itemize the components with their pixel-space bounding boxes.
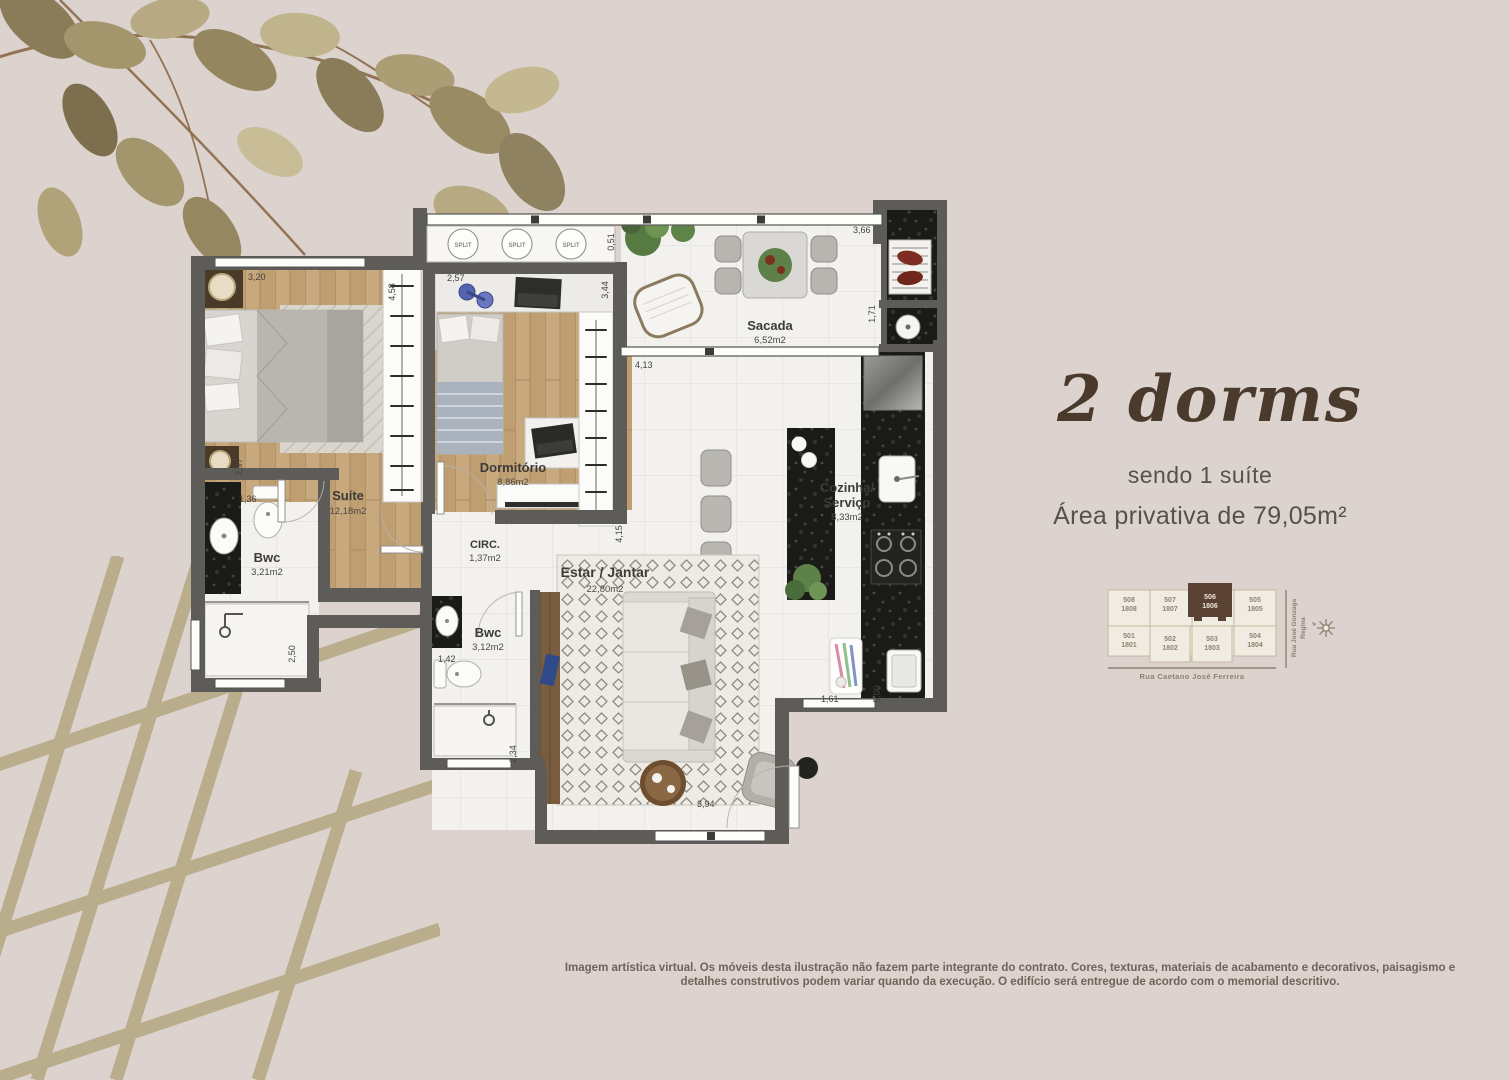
label-sacada: Sacada [747, 318, 793, 333]
dim-3-66: 3,66 [853, 225, 871, 235]
plan-headline: 2 dorms [1055, 362, 1365, 437]
street-right-label-1: Rua José Gonzaga [1291, 599, 1298, 658]
dim-3-94: 3,94 [697, 799, 715, 809]
shower [434, 706, 516, 756]
dim-3-20: 3,20 [248, 272, 266, 282]
entry-door-leaf [789, 766, 799, 828]
laptop [514, 277, 562, 309]
bwc2-window [447, 759, 511, 768]
kitchen-window [803, 699, 875, 708]
label-bwc-social: Bwc [475, 625, 502, 640]
dim-1-71: 1,71 [867, 305, 877, 323]
dim-1-61: 1,61 [821, 694, 839, 704]
table-plant [758, 248, 792, 282]
dim-2-34: 2,34 [508, 745, 518, 763]
dim-2-50: 2,50 [287, 645, 297, 663]
disclaimer-line-1: Imagem artística virtual. Os móveis dest… [520, 961, 1500, 975]
shower [205, 604, 309, 676]
label-cozinha-1: Cozinha/ [820, 480, 875, 495]
dim-5-00: 5,00 [872, 685, 882, 703]
dim-4-58: 4,58 [387, 283, 397, 301]
unit-505: 505 [1249, 597, 1261, 604]
area-bwc-suite: 3,21m2 [251, 567, 283, 578]
plan-private-area: Área privativa de 79,05m² [1050, 502, 1350, 531]
sofa [623, 592, 715, 762]
label-suite: Suíte [332, 488, 364, 503]
cleaning-items [830, 638, 862, 694]
unit-1807: 1807 [1162, 606, 1178, 613]
churrasqueira [881, 210, 937, 348]
dim-4-15: 4,15 [614, 525, 624, 543]
flyer-page: SPLIT SPLIT SPLIT Suíte 12,18m2 Dormitór… [0, 0, 1509, 1080]
unit-1801: 1801 [1121, 642, 1137, 649]
plan-subtitle: sendo 1 suíte [1080, 462, 1320, 489]
split-label: SPLIT [508, 243, 525, 249]
shower-window [215, 679, 285, 688]
unit-1802: 1802 [1162, 645, 1178, 652]
unit-1808: 1808 [1121, 606, 1137, 613]
dim-1-42: 1,42 [438, 654, 456, 664]
dim-2-97: 2,97 [234, 458, 244, 476]
unit-1803: 1803 [1204, 645, 1220, 652]
area-dormitorio: 8,86m2 [497, 477, 529, 488]
stove [871, 530, 921, 584]
area-cozinha: 8,33m2 [831, 512, 863, 523]
unit-501: 501 [1123, 633, 1135, 640]
area-estar: 22,80m2 [587, 584, 624, 595]
living-sacada-slider [621, 347, 879, 356]
split-label: SPLIT [454, 243, 471, 249]
dim-3-44: 3,44 [600, 281, 610, 299]
unit-503: 503 [1206, 636, 1218, 643]
laptop [531, 423, 577, 459]
unit-1804: 1804 [1247, 642, 1263, 649]
label-cozinha-2: Serviço [824, 495, 871, 510]
disclaimer-line-2: detalhes construtivos podem variar quand… [520, 975, 1500, 989]
dormitorio-closet [579, 312, 613, 526]
label-circ: CIRC. [470, 539, 500, 551]
split-shelf: SPLIT SPLIT SPLIT [427, 226, 615, 262]
street-right-label-2: Regina [1300, 617, 1307, 639]
dim-0-51: 0,51 [606, 233, 616, 251]
unit-506: 506 [1204, 594, 1216, 601]
suite-window [215, 258, 365, 267]
dim-1-36: 1,36 [239, 494, 257, 504]
area-bwc-social: 3,12m2 [472, 642, 504, 653]
unit-504: 504 [1249, 633, 1261, 640]
compass-icon [1312, 619, 1335, 637]
bwc1-window [191, 620, 200, 670]
unit-502: 502 [1164, 636, 1176, 643]
label-dormitorio: Dormitório [480, 460, 547, 475]
split-label: SPLIT [562, 243, 579, 249]
area-suite: 12,18m2 [330, 506, 367, 517]
street-bottom-label: Rua Caetano José Ferreira [1139, 672, 1244, 681]
unit-508: 508 [1123, 597, 1135, 604]
label-estar: Estar / Jantar [561, 564, 650, 580]
sacada-window-band [427, 214, 882, 225]
floor-plan: SPLIT SPLIT SPLIT Suíte 12,18m2 Dormitór… [185, 200, 975, 850]
dim-4-13: 4,13 [635, 360, 653, 370]
area-circ: 1,37m2 [469, 553, 501, 564]
toilet [434, 660, 481, 688]
unit-1806: 1806 [1202, 603, 1218, 610]
fridge [864, 356, 922, 410]
label-bwc-suite: Bwc [254, 550, 281, 565]
dim-2-57: 2,57 [447, 273, 465, 283]
unit-1805: 1805 [1247, 606, 1263, 613]
coffee-table [640, 760, 686, 806]
area-sacada: 6,52m2 [754, 335, 786, 346]
disclaimer: Imagem artística virtual. Os móveis dest… [520, 961, 1500, 989]
unit-507: 507 [1164, 597, 1176, 604]
location-minimap: 508 1808 507 1807 506 1806 505 1805 501 … [1098, 580, 1348, 690]
